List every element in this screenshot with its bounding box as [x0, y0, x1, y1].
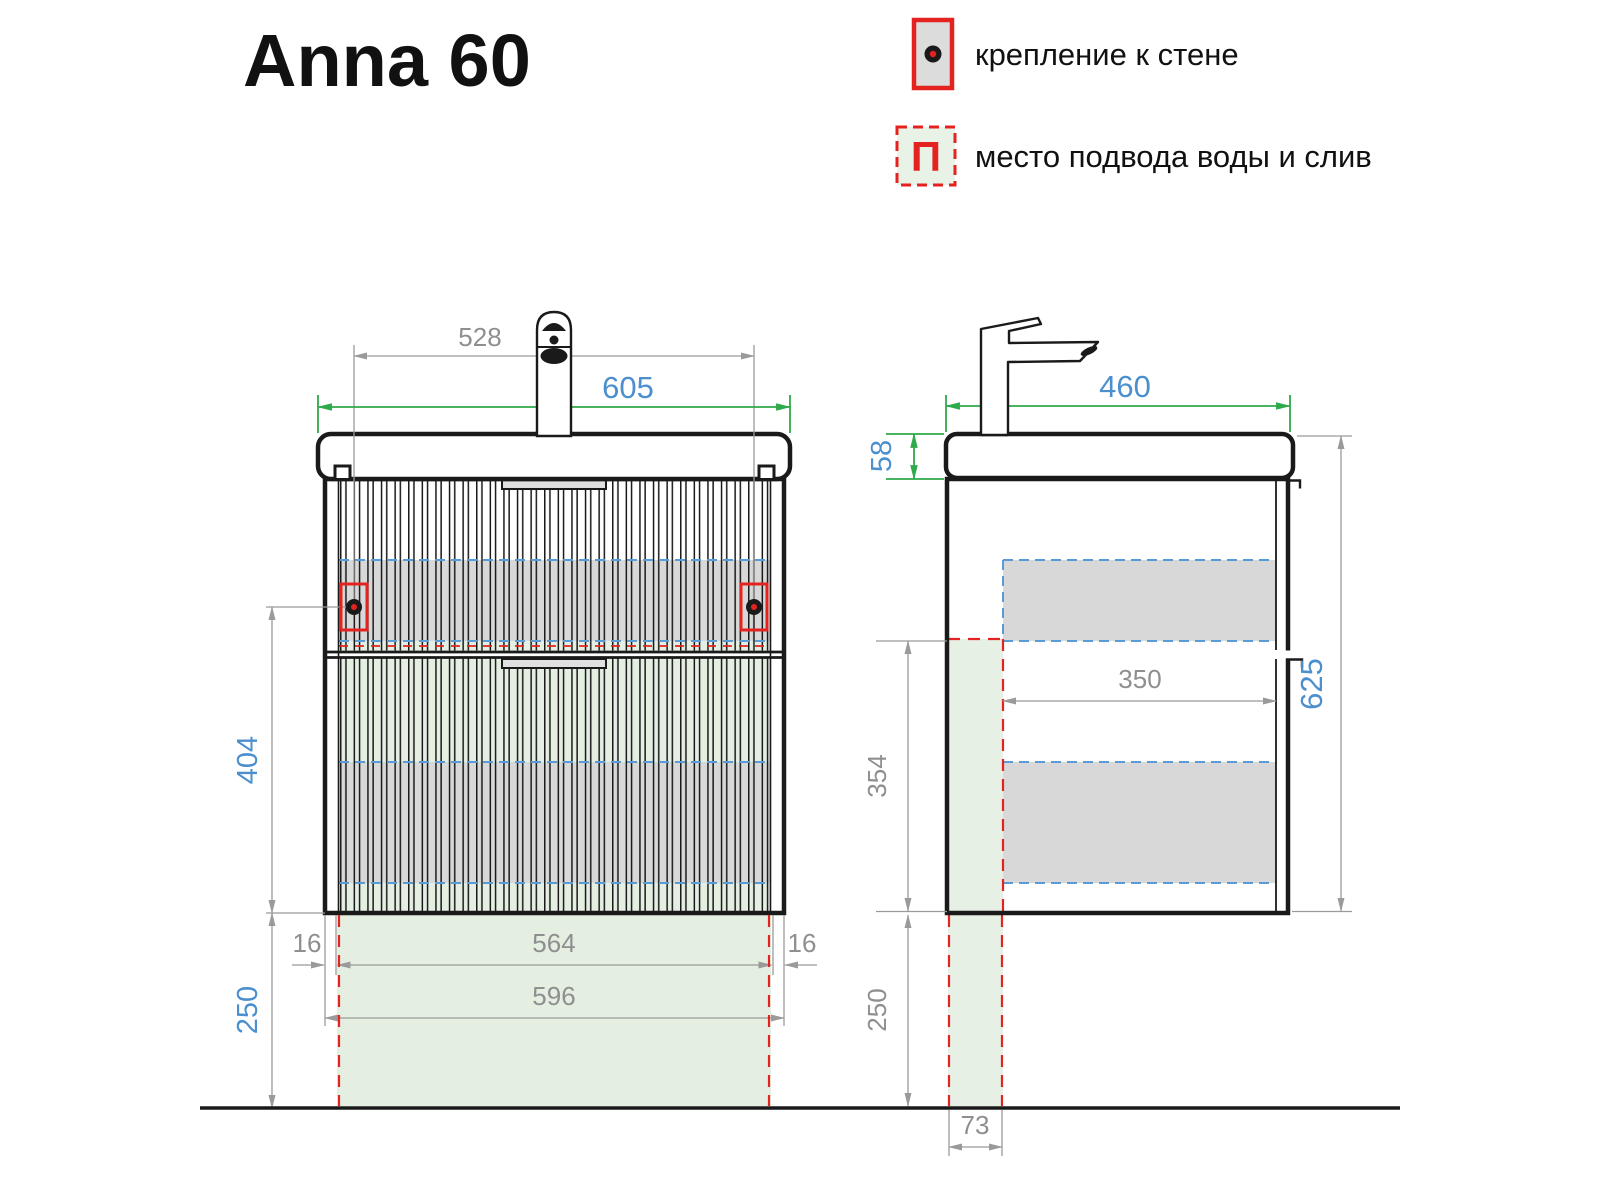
side-band-gray-lower: [1003, 762, 1276, 883]
svg-text:354: 354: [862, 754, 892, 797]
legend: крепление к стене П место подвода воды и…: [897, 20, 1372, 185]
svg-text:16: 16: [293, 928, 322, 958]
side-drain-strip: [948, 639, 1003, 911]
svg-text:16: 16: [788, 928, 817, 958]
svg-text:58: 58: [866, 440, 898, 472]
svg-text:250: 250: [232, 986, 264, 1034]
side-view: [946, 434, 1302, 1106]
technical-drawing-page: Anna 60 крепление к стене П место подвод…: [0, 0, 1600, 1200]
front-basin-clip-right: [759, 466, 774, 480]
dim-side-354: 354: [862, 641, 947, 912]
svg-text:350: 350: [1118, 664, 1161, 694]
svg-text:605: 605: [602, 370, 654, 405]
dim-front-16-right: 16: [785, 928, 817, 965]
vanity-dimension-drawing: Anna 60 крепление к стене П место подвод…: [0, 0, 1600, 1200]
svg-text:625: 625: [1294, 658, 1329, 710]
svg-text:596: 596: [532, 981, 575, 1011]
svg-text:564: 564: [532, 928, 575, 958]
dim-side-250: 250: [862, 915, 908, 1106]
dim-side-58: 58: [866, 434, 944, 479]
front-top-drawer-handle: [502, 480, 606, 489]
side-drain-strip-lower: [948, 915, 1003, 1106]
water-supply-symbol: П: [911, 133, 941, 180]
svg-text:528: 528: [458, 322, 501, 352]
side-band-gray-upper: [1003, 560, 1276, 641]
svg-text:460: 460: [1099, 369, 1151, 404]
side-faucet: [981, 318, 1099, 435]
water-supply-label: место подвода воды и слив: [975, 139, 1372, 174]
front-faucet: [537, 312, 571, 436]
page-title: Anna 60: [243, 19, 531, 102]
wall-mount-label: крепление к стене: [975, 37, 1239, 72]
front-bottom-drawer-handle: [502, 659, 606, 668]
front-fluted-facade: [339, 481, 770, 911]
front-drawer-divider: [327, 651, 782, 659]
front-washbasin: [318, 434, 790, 479]
dim-front-250: 250: [232, 913, 272, 1108]
svg-text:404: 404: [232, 736, 264, 784]
dim-side-73: 73: [949, 1110, 1002, 1156]
dim-side-350: 350: [1003, 664, 1276, 701]
dim-front-16-left: 16: [292, 928, 324, 965]
front-basin-clip-left: [335, 466, 350, 480]
svg-text:73: 73: [961, 1110, 990, 1140]
side-washbasin: [946, 434, 1293, 478]
dim-side-625: 625: [1292, 436, 1352, 912]
svg-text:250: 250: [862, 988, 892, 1031]
